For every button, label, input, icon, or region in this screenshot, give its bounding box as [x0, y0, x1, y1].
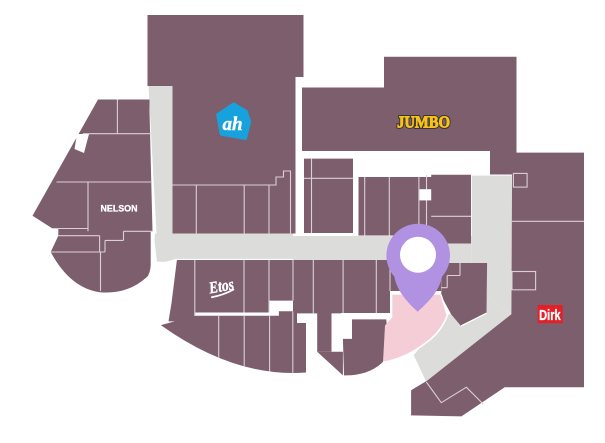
- svg-text:ah: ah: [222, 114, 242, 135]
- svg-text:JUMBO: JUMBO: [397, 112, 450, 131]
- svg-text:Dirk: Dirk: [539, 307, 561, 324]
- svg-text:NELSON: NELSON: [101, 203, 138, 214]
